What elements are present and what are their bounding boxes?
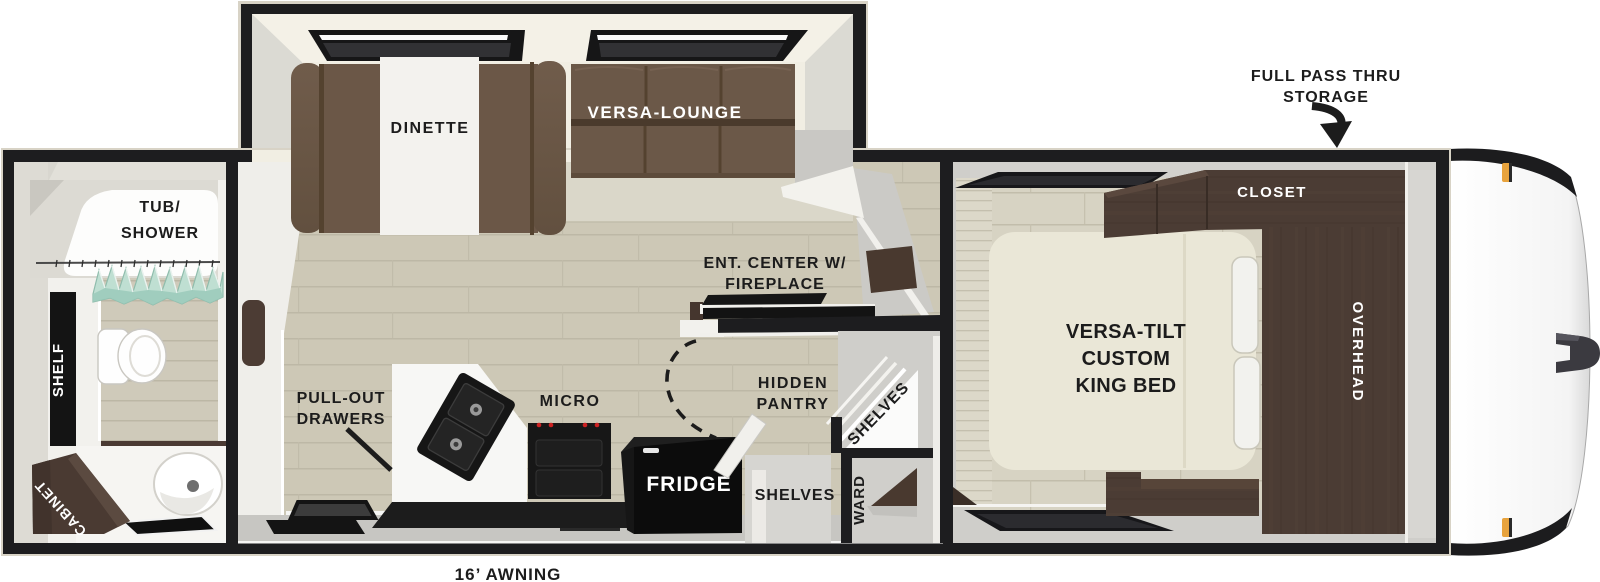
svg-text:HIDDEN: HIDDEN (758, 375, 828, 392)
svg-text:FRIDGE: FRIDGE (646, 473, 731, 496)
svg-text:TUB/: TUB/ (139, 199, 180, 216)
svg-text:DINETTE: DINETTE (391, 120, 470, 137)
svg-text:PANTRY: PANTRY (757, 396, 830, 413)
svg-text:SHOWER: SHOWER (121, 225, 199, 242)
svg-text:PULL-OUT: PULL-OUT (297, 390, 386, 407)
svg-text:ENT. CENTER W/: ENT. CENTER W/ (704, 255, 847, 272)
svg-text:SHELVES: SHELVES (755, 487, 836, 504)
svg-text:CLOSET: CLOSET (1237, 184, 1307, 201)
svg-text:FIREPLACE: FIREPLACE (725, 276, 825, 293)
svg-text:VERSA-LOUNGE: VERSA-LOUNGE (588, 103, 743, 122)
svg-text:SHELF: SHELF (50, 343, 67, 397)
svg-text:CUSTOM: CUSTOM (1082, 348, 1171, 370)
svg-text:DRAWERS: DRAWERS (297, 411, 386, 428)
svg-text:FULL PASS THRU: FULL PASS THRU (1251, 68, 1401, 85)
svg-text:16’ AWNING: 16’ AWNING (455, 565, 562, 582)
svg-text:KING BED: KING BED (1076, 375, 1177, 397)
svg-text:STORAGE: STORAGE (1283, 89, 1369, 106)
svg-text:MICRO: MICRO (540, 393, 601, 410)
svg-text:VERSA-TILT: VERSA-TILT (1066, 321, 1186, 343)
svg-text:OVERHEAD: OVERHEAD (1349, 301, 1366, 402)
svg-text:WARD: WARD (851, 475, 868, 525)
